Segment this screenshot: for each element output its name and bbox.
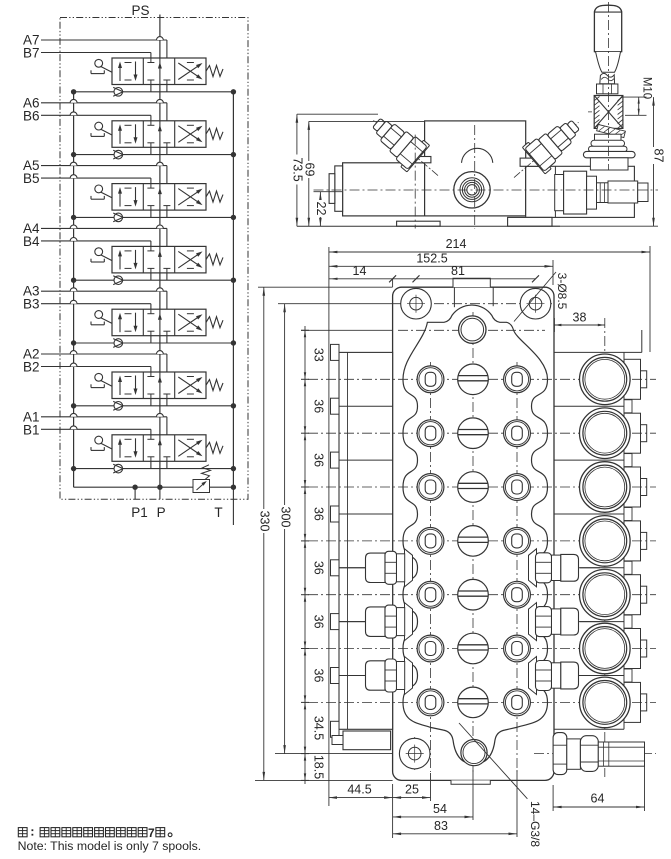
svg-text:25: 25 [405,783,419,797]
svg-text:54: 54 [433,802,447,816]
svg-text:36: 36 [312,507,326,521]
svg-text:Note: This model is only 7 spo: Note: This model is only 7 spools. [18,839,202,853]
svg-text:300: 300 [278,507,292,528]
svg-text:7: 7 [148,826,155,840]
svg-text:B4: B4 [23,234,40,249]
svg-text:P: P [157,505,166,520]
svg-text:B6: B6 [23,108,40,123]
svg-text:22: 22 [314,202,328,216]
svg-text:18.5: 18.5 [312,755,326,779]
svg-text:B5: B5 [23,171,40,186]
svg-text:38: 38 [573,311,587,325]
svg-text:81: 81 [451,264,465,278]
svg-text:B2: B2 [23,360,40,375]
svg-text:83: 83 [434,819,448,833]
svg-text:B1: B1 [23,422,40,437]
svg-text:M10: M10 [641,77,653,99]
svg-text:B7: B7 [23,46,40,61]
svg-text:214: 214 [446,237,467,251]
svg-text:36: 36 [312,399,326,413]
svg-text:36: 36 [312,615,326,629]
svg-text:34.5: 34.5 [312,716,326,740]
svg-text:B3: B3 [23,297,40,312]
svg-text:36: 36 [312,561,326,575]
svg-text:36: 36 [312,669,326,683]
svg-text:PS: PS [131,3,149,18]
svg-text:3-Ø8.5: 3-Ø8.5 [555,273,569,310]
svg-text:69: 69 [303,163,317,177]
svg-text:14: 14 [353,264,367,278]
svg-text:87: 87 [651,149,665,163]
svg-text:P1: P1 [131,505,148,520]
svg-text:T: T [214,505,222,520]
svg-text:152.5: 152.5 [416,252,447,266]
svg-text:64: 64 [591,792,605,806]
svg-text:14–G3/8: 14–G3/8 [528,801,542,847]
svg-text:44.5: 44.5 [347,783,371,797]
svg-text:36: 36 [312,453,326,467]
svg-text:33: 33 [312,348,326,362]
svg-text:330: 330 [258,511,272,532]
